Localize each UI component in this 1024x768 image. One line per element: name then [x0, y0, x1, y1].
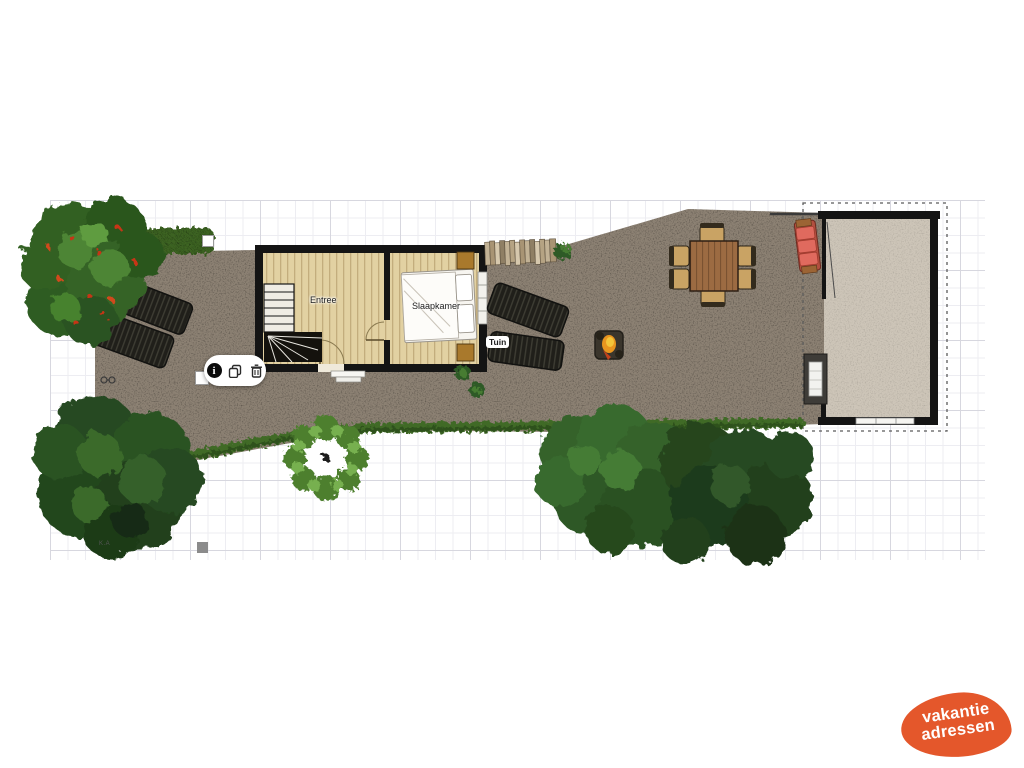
firewood-stack[interactable]: [485, 239, 557, 266]
delete-button[interactable]: [249, 363, 264, 378]
house[interactable]: [255, 245, 487, 382]
dining-chair[interactable]: [737, 246, 756, 266]
dining-chair[interactable]: [669, 269, 689, 289]
entrance-steps: [331, 371, 365, 382]
floorplan-canvas: Entree Slaapkamer Tuin K.A i: [0, 0, 1024, 768]
plan-note: K.A: [99, 541, 110, 547]
grid-marker: [197, 542, 208, 553]
duplicate-icon: [228, 364, 242, 378]
object-toolbar: i: [204, 355, 266, 386]
dining-chair[interactable]: [737, 269, 756, 289]
bedroom-window: [478, 272, 487, 324]
dining-table[interactable]: [690, 241, 738, 291]
garden-label-tuin: Tuin: [486, 336, 509, 348]
annex-window: [856, 418, 914, 424]
vakantieadressen-logo: vakantie adressen: [901, 693, 1011, 759]
floorplan-drawing: [0, 0, 1024, 768]
tv-cabinet[interactable]: [804, 354, 827, 404]
room-label-entree: Entree: [310, 295, 337, 305]
nightstand[interactable]: [457, 344, 474, 361]
duplicate-button[interactable]: [228, 363, 243, 378]
trash-icon: [250, 364, 263, 378]
room-label-slaapkamer: Slaapkamer: [412, 301, 460, 311]
nightstand[interactable]: [457, 252, 474, 269]
dining-chair[interactable]: [669, 246, 689, 266]
info-icon: i: [207, 363, 222, 378]
bush-cluster-dark[interactable]: [660, 422, 814, 565]
selection-handle[interactable]: [202, 235, 214, 247]
info-button[interactable]: i: [207, 363, 222, 378]
fire-pit[interactable]: [595, 331, 623, 360]
